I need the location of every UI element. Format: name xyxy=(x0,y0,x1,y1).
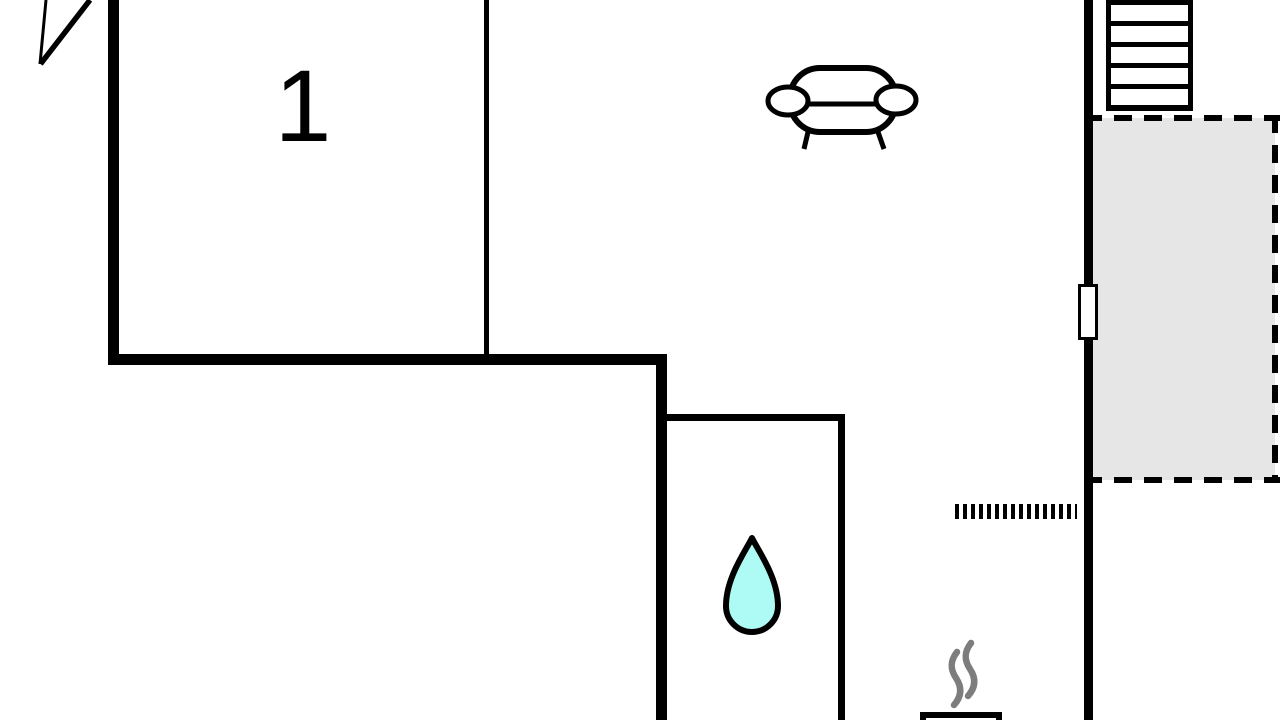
terrace-dashed-edge-top xyxy=(1084,115,1280,121)
wall-bathroom-right xyxy=(838,414,845,720)
window-marker xyxy=(1078,284,1098,340)
steam-icon xyxy=(935,633,995,715)
wall-room1-left xyxy=(108,0,119,365)
terrace-dashed-edge-bottom xyxy=(1084,477,1280,483)
wall-right-exterior xyxy=(1084,0,1093,720)
north-arrow-icon xyxy=(28,0,98,70)
dotted-opening xyxy=(955,504,1077,519)
terrace-area xyxy=(1093,118,1275,480)
sofa-icon xyxy=(758,60,928,155)
floor-plan: 1 xyxy=(0,0,1280,720)
wall-room1-bottom xyxy=(108,354,667,365)
wall-bathroom-top xyxy=(663,414,845,421)
wall-room1-right-partition xyxy=(484,0,489,359)
wall-mid-vertical xyxy=(656,354,667,720)
staircase xyxy=(1106,0,1193,111)
stove xyxy=(920,712,1002,720)
water-drop-icon xyxy=(712,528,792,643)
terrace-dashed-edge-right xyxy=(1272,115,1278,483)
room1-label: 1 xyxy=(253,53,353,160)
